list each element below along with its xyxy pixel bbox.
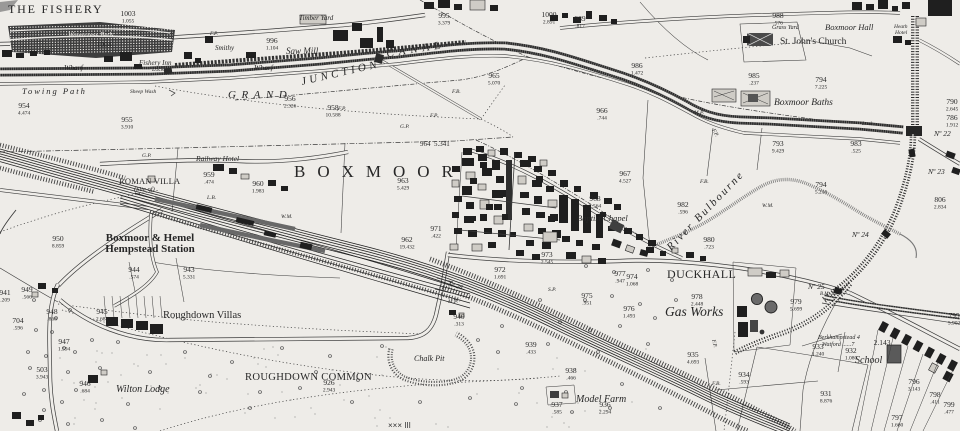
svg-text:1003: 1003 xyxy=(121,9,136,18)
svg-text:Boxmoor Baths: Boxmoor Baths xyxy=(774,98,833,108)
svg-text:Nº 24: Nº 24 xyxy=(851,230,869,239)
svg-text:972: 972 xyxy=(494,265,506,274)
svg-text:.868: .868 xyxy=(47,317,57,323)
svg-text:799: 799 xyxy=(943,400,955,409)
svg-text:Railway Hotel: Railway Hotel xyxy=(195,154,239,163)
svg-text:963: 963 xyxy=(397,176,409,185)
svg-text:Smithy: Smithy xyxy=(215,44,235,52)
svg-text:5.902: 5.902 xyxy=(948,321,960,327)
svg-text:956: 956 xyxy=(284,94,296,103)
svg-text:786: 786 xyxy=(946,113,958,122)
svg-text:Wharf: Wharf xyxy=(254,63,274,72)
svg-text:934: 934 xyxy=(738,370,750,379)
svg-text:.947: .947 xyxy=(615,279,625,285)
svg-text:.474: .474 xyxy=(204,180,214,186)
svg-text:.466: .466 xyxy=(566,376,576,382)
svg-text:2.564: 2.564 xyxy=(589,204,602,210)
svg-text:Sheep Wash: Sheep Wash xyxy=(130,89,156,95)
svg-text:F.B.: F.B. xyxy=(711,381,721,387)
svg-text:M.P.: M.P. xyxy=(693,110,704,116)
svg-text:.422: .422 xyxy=(431,234,441,240)
svg-text:.596: .596 xyxy=(13,326,23,332)
svg-text:.209: .209 xyxy=(0,298,10,304)
svg-text:××× III: ××× III xyxy=(388,421,411,430)
svg-text:1004: 1004 xyxy=(97,40,112,49)
svg-text:2.834: 2.834 xyxy=(934,205,947,211)
svg-text:9.429: 9.429 xyxy=(772,149,785,155)
svg-text:.744: .744 xyxy=(597,116,607,122)
svg-text:966: 966 xyxy=(596,106,608,115)
svg-text:F.B.: F.B. xyxy=(699,179,709,185)
svg-text:949: 949 xyxy=(21,285,33,294)
svg-text:940: 940 xyxy=(453,312,465,321)
svg-text:933: 933 xyxy=(812,342,824,351)
svg-text:M.P.: M.P. xyxy=(447,299,458,305)
svg-text:Boxmoor Hall: Boxmoor Hall xyxy=(825,22,874,32)
svg-text:Chalk Pit: Chalk Pit xyxy=(414,354,445,363)
svg-text:2.943: 2.943 xyxy=(323,388,336,394)
svg-text:974: 974 xyxy=(626,272,638,281)
svg-text:.684: .684 xyxy=(80,389,90,395)
svg-text:Wilton Lodge: Wilton Lodge xyxy=(116,384,170,395)
svg-text:Timber Yard: Timber Yard xyxy=(299,14,334,22)
svg-text:793: 793 xyxy=(772,139,784,148)
svg-text:943: 943 xyxy=(183,265,195,274)
svg-text:2.326: 2.326 xyxy=(284,104,297,110)
svg-text:Watercress Beds: Watercress Beds xyxy=(68,31,114,39)
svg-text:10.588: 10.588 xyxy=(325,113,340,119)
svg-text:S.P.: S.P. xyxy=(548,287,556,293)
svg-text:Roughdown Villas: Roughdown Villas xyxy=(163,310,241,321)
svg-text:960: 960 xyxy=(252,179,264,188)
svg-text:1.055: 1.055 xyxy=(122,19,135,25)
svg-text:19.432: 19.432 xyxy=(399,245,414,251)
svg-text:796: 796 xyxy=(908,377,920,386)
svg-text:797: 797 xyxy=(891,413,903,422)
svg-text:971: 971 xyxy=(430,224,442,233)
svg-text:937: 937 xyxy=(551,400,563,409)
svg-text:ROUGHDOWN COMMON: ROUGHDOWN COMMON xyxy=(245,372,372,383)
svg-text:.313: .313 xyxy=(454,322,464,328)
svg-text:989: 989 xyxy=(574,14,586,23)
svg-text:GRAND: GRAND xyxy=(228,89,292,101)
svg-text:1.691: 1.691 xyxy=(494,275,507,281)
svg-text:B.M. 247-4: B.M. 247-4 xyxy=(820,292,843,297)
svg-text:932: 932 xyxy=(845,346,857,355)
svg-text:L.B.: L.B. xyxy=(206,195,216,201)
svg-text:Berkhampstead 4: Berkhampstead 4 xyxy=(818,334,860,341)
svg-text:.237: .237 xyxy=(749,81,759,87)
svg-text:BOXMOOR: BOXMOOR xyxy=(294,162,465,181)
svg-text:Hempstead Station: Hempstead Station xyxy=(105,243,195,255)
svg-text:1.983: 1.983 xyxy=(252,189,265,195)
svg-text:1.080: 1.080 xyxy=(845,356,858,362)
svg-text:3.379: 3.379 xyxy=(438,21,451,27)
svg-text:W.M.: W.M. xyxy=(762,203,773,209)
svg-text:795: 795 xyxy=(948,311,960,320)
svg-text:988: 988 xyxy=(772,11,784,20)
svg-text:.574: .574 xyxy=(129,275,139,281)
svg-text:976: 976 xyxy=(623,304,635,313)
svg-text:938: 938 xyxy=(565,366,577,375)
svg-text:2.684: 2.684 xyxy=(96,317,109,323)
svg-text:1.472: 1.472 xyxy=(631,71,644,77)
svg-text:.525: .525 xyxy=(851,149,861,155)
svg-text:.477: .477 xyxy=(944,410,954,416)
svg-text:.593: .593 xyxy=(739,380,749,386)
svg-text:975: 975 xyxy=(581,291,593,300)
svg-text:945: 945 xyxy=(96,307,108,316)
svg-text:.951: .951 xyxy=(582,301,592,307)
svg-text:Nº 23: Nº 23 xyxy=(927,167,945,176)
svg-text:995: 995 xyxy=(438,11,450,20)
svg-text:Fishery Inn: Fishery Inn xyxy=(138,59,172,67)
svg-text:School: School xyxy=(855,355,882,366)
svg-text:4.474: 4.474 xyxy=(18,111,31,117)
svg-text:806: 806 xyxy=(934,195,946,204)
svg-text:.585: .585 xyxy=(552,410,562,416)
svg-text:W.M.: W.M. xyxy=(281,214,292,220)
svg-text:7.225: 7.225 xyxy=(815,85,828,91)
svg-text:5.429: 5.429 xyxy=(397,186,410,192)
svg-text:996: 996 xyxy=(266,36,278,45)
svg-text:941: 941 xyxy=(0,288,11,297)
svg-text:1.594: 1.594 xyxy=(58,347,71,353)
svg-text:Nº 25: Nº 25 xyxy=(807,282,825,291)
svg-text:979: 979 xyxy=(790,297,802,306)
svg-text:964 5.341: 964 5.341 xyxy=(420,140,450,148)
svg-text:5.216: 5.216 xyxy=(815,190,828,196)
svg-text:1.660: 1.660 xyxy=(891,423,904,429)
svg-text:F.P.: F.P. xyxy=(209,31,218,37)
svg-text:1.240: 1.240 xyxy=(812,352,825,358)
svg-text:(Site of): (Site of) xyxy=(134,186,155,193)
svg-text:2.448: 2.448 xyxy=(691,302,704,308)
svg-text:3.910: 3.910 xyxy=(121,125,134,131)
svg-text:1.912: 1.912 xyxy=(946,123,959,129)
svg-text:Towing Path: Towing Path xyxy=(22,86,87,96)
svg-text:1.068: 1.068 xyxy=(626,282,639,288)
svg-text:503: 503 xyxy=(36,365,48,374)
svg-text:985: 985 xyxy=(748,71,760,80)
svg-text:983: 983 xyxy=(850,139,862,148)
svg-text:Nº 22: Nº 22 xyxy=(933,129,951,138)
svg-text:St. John's Church: St. John's Church xyxy=(780,37,847,47)
svg-text:978: 978 xyxy=(691,292,703,301)
svg-text:794: 794 xyxy=(815,180,827,189)
svg-text:954: 954 xyxy=(18,101,30,110)
svg-text:.576: .576 xyxy=(773,21,783,27)
svg-text:Lock: Lock xyxy=(151,67,164,73)
svg-text:939: 939 xyxy=(525,340,537,349)
svg-text:.817: .817 xyxy=(575,24,585,30)
svg-text:950: 950 xyxy=(52,234,64,243)
svg-text:5.331: 5.331 xyxy=(183,275,196,281)
svg-text:THE FISHERY: THE FISHERY xyxy=(8,2,103,16)
svg-text:973: 973 xyxy=(541,250,553,259)
svg-text:4.693: 4.693 xyxy=(687,360,700,366)
svg-text:704: 704 xyxy=(12,316,24,325)
svg-text:980: 980 xyxy=(703,235,715,244)
svg-text:Lock: Lock xyxy=(861,121,873,127)
svg-text:2.891: 2.891 xyxy=(543,20,556,26)
svg-text:3.143: 3.143 xyxy=(908,387,921,393)
svg-text:Wharf: Wharf xyxy=(64,63,84,72)
svg-text:986: 986 xyxy=(631,61,643,70)
svg-text:5.070: 5.070 xyxy=(488,81,501,87)
svg-text:F.B.: F.B. xyxy=(451,89,461,95)
svg-text:958: 958 xyxy=(327,103,339,112)
svg-text:798: 798 xyxy=(929,390,941,399)
svg-text:Hotel: Hotel xyxy=(894,30,908,36)
svg-text:.596: .596 xyxy=(678,210,688,216)
svg-text:926: 926 xyxy=(323,378,335,387)
svg-text:5.699: 5.699 xyxy=(790,307,803,313)
svg-text:.566: .566 xyxy=(22,295,32,301)
svg-text:2.143: 2.143 xyxy=(874,338,891,347)
svg-text:936: 936 xyxy=(599,400,611,409)
svg-text:ROMAN VILLA: ROMAN VILLA xyxy=(119,176,181,186)
svg-text:931: 931 xyxy=(820,389,832,398)
svg-text:968: 968 xyxy=(589,194,601,203)
svg-text:G.P.: G.P. xyxy=(400,124,409,130)
svg-text:F.P.: F.P. xyxy=(429,113,438,119)
svg-text:.723: .723 xyxy=(704,245,714,251)
svg-text:982: 982 xyxy=(677,200,689,209)
svg-text:Saw Mill: Saw Mill xyxy=(286,46,319,56)
svg-text:2.645: 2.645 xyxy=(946,107,959,113)
svg-text:959: 959 xyxy=(203,170,215,179)
svg-text:955: 955 xyxy=(121,115,133,124)
svg-text:8.859: 8.859 xyxy=(52,244,65,250)
svg-text:790: 790 xyxy=(946,97,958,106)
svg-text:3.943: 3.943 xyxy=(36,375,49,381)
svg-text:948: 948 xyxy=(46,307,58,316)
svg-text:965: 965 xyxy=(488,71,500,80)
svg-text:Baptist Chapel: Baptist Chapel xyxy=(577,213,628,223)
svg-text:946: 946 xyxy=(79,379,91,388)
svg-text:.411: .411 xyxy=(930,400,940,406)
svg-text:2.294: 2.294 xyxy=(599,410,612,416)
svg-text:2.545: 2.545 xyxy=(541,260,554,266)
svg-text:G.P.: G.P. xyxy=(142,153,151,159)
svg-text:1000: 1000 xyxy=(542,10,557,19)
svg-text:944: 944 xyxy=(128,265,140,274)
svg-text:4.527: 4.527 xyxy=(619,179,632,185)
svg-text:1.104: 1.104 xyxy=(266,46,279,52)
svg-text:962: 962 xyxy=(401,235,413,244)
svg-text:977: 977 xyxy=(614,269,626,278)
svg-text:.433: .433 xyxy=(526,350,536,356)
svg-text:794: 794 xyxy=(815,75,827,84)
svg-text:8.876: 8.876 xyxy=(820,399,833,405)
svg-text:967: 967 xyxy=(619,169,631,178)
svg-text:935: 935 xyxy=(687,350,699,359)
svg-text:947: 947 xyxy=(58,337,70,346)
svg-text:1.493: 1.493 xyxy=(623,314,636,320)
svg-text:DUCKHALL: DUCKHALL xyxy=(667,267,736,281)
